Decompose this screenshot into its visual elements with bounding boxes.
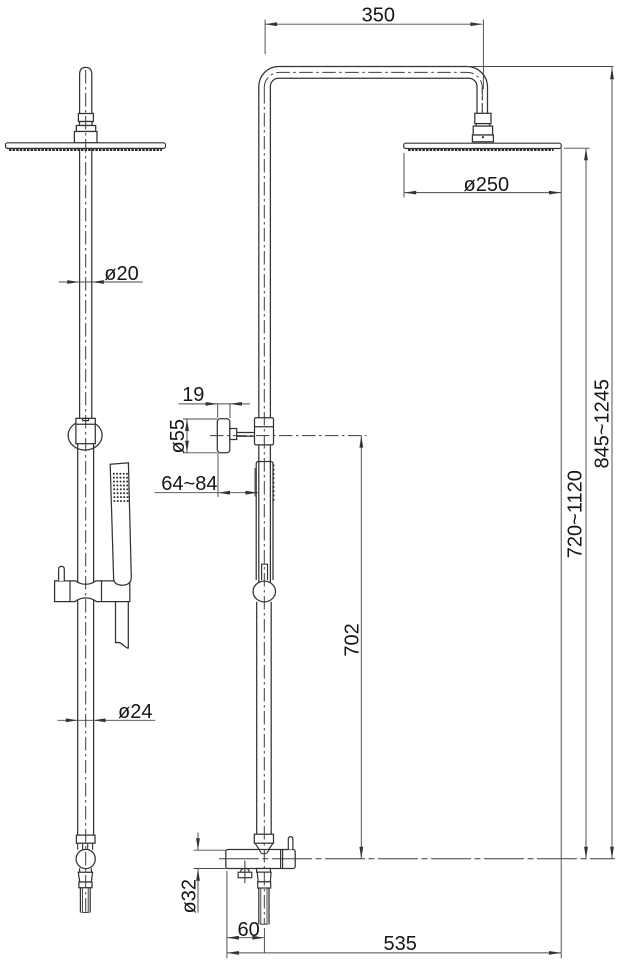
svg-text:ø24: ø24 [118, 701, 152, 723]
svg-text:702: 702 [342, 623, 364, 656]
svg-text:ø250: ø250 [464, 174, 510, 196]
svg-text:ø32: ø32 [179, 879, 201, 913]
svg-text:19: 19 [182, 384, 204, 406]
svg-text:845~1245: 845~1245 [591, 379, 613, 469]
svg-text:720~1120: 720~1120 [564, 470, 586, 558]
svg-text:ø20: ø20 [104, 263, 138, 285]
svg-text:64~84: 64~84 [161, 473, 217, 495]
svg-text:535: 535 [384, 933, 417, 955]
svg-text:ø55: ø55 [167, 419, 189, 453]
svg-text:60: 60 [238, 919, 260, 941]
svg-text:350: 350 [362, 5, 395, 27]
